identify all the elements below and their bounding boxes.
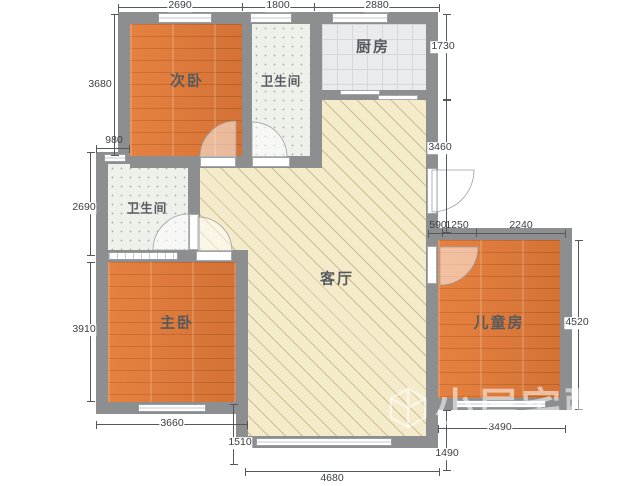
sliding-door-kitchen-right [378, 95, 418, 100]
dim-tick [242, 3, 243, 11]
door-entry [427, 168, 437, 214]
dim-tick [314, 3, 315, 11]
watermark-logo-icon [386, 386, 430, 430]
window-bathroom-top [250, 13, 292, 23]
room-label-bathroom-middle: 卫生间 [127, 198, 168, 217]
dim-mid-1250: 1250 [444, 220, 469, 232]
watermark-text: 小层宅配 [435, 388, 607, 428]
window-master-bottom [138, 404, 206, 412]
dim-left-3910: 3910 [71, 324, 96, 336]
dim-left-2690: 2690 [71, 202, 96, 214]
watermark: 小层宅配 [386, 386, 607, 430]
floor-plan: 次卧 卫生间 厨房 卫生间 主卧 客厅 儿童房 2690 1800 2880 3… [0, 0, 640, 486]
wall-bath-kitchen [310, 12, 322, 168]
room-label-bathroom-top: 卫生间 [261, 71, 302, 90]
dim-line-3460 [446, 100, 447, 233]
dim-line-1730 [446, 14, 447, 100]
wall-master-right [236, 250, 248, 448]
room-label-kitchen: 厨房 [356, 36, 390, 57]
door-master [196, 251, 232, 261]
dim-line-980 [96, 148, 130, 149]
dim-left-980: 980 [104, 135, 124, 147]
bathroom-top-floor [252, 24, 310, 156]
window-bedroom2 [158, 13, 212, 23]
kitchen-floor [322, 24, 426, 90]
dim-bottom-3660: 3660 [159, 418, 184, 430]
wall-bed2-bath [242, 24, 252, 168]
dim-bottom-1510: 1510 [227, 437, 252, 449]
dim-bottom-4680: 4680 [319, 473, 344, 485]
dim-bottom-1490: 1490 [434, 448, 459, 460]
door-kids [427, 246, 437, 284]
dim-right-4520: 4520 [564, 317, 589, 329]
room-label-secondary-bedroom: 次卧 [170, 70, 204, 91]
dim-left-3680: 3680 [87, 79, 112, 91]
window-living-bottom [256, 438, 392, 446]
window-master-top [108, 252, 178, 260]
door-bathroom-top [252, 157, 290, 167]
dim-right-1730: 1730 [430, 41, 455, 53]
dim-tick [476, 229, 477, 237]
door-arc-entry [432, 170, 474, 212]
dim-top-1: 2690 [167, 0, 192, 12]
room-label-master-bedroom: 主卧 [160, 312, 194, 333]
dim-right-3460: 3460 [427, 142, 452, 154]
dim-top-2: 1800 [265, 0, 290, 12]
window-kitchen [332, 13, 388, 23]
room-label-kids-room: 儿童房 [473, 312, 524, 333]
room-label-living-room: 客厅 [320, 268, 354, 289]
dim-line-middle [428, 233, 566, 234]
door-bathroom-middle [189, 214, 199, 250]
dim-top-3: 2880 [364, 0, 389, 12]
dim-line-1510 [233, 404, 234, 465]
sliding-door-kitchen-left [340, 90, 380, 95]
door-bedroom2 [200, 157, 236, 167]
wall-left-lower [96, 152, 108, 414]
dim-mid-2240: 2240 [508, 220, 533, 232]
